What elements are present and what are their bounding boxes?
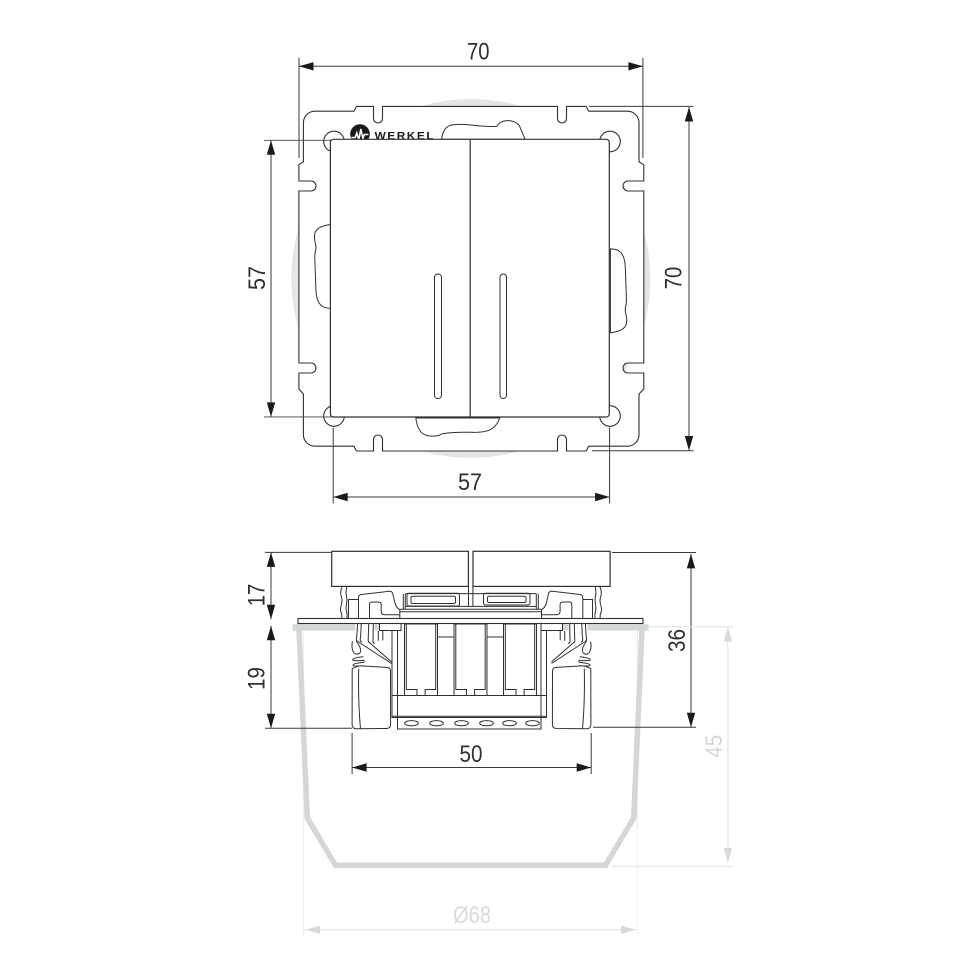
svg-text:45: 45 [701, 735, 728, 758]
svg-text:70: 70 [661, 267, 688, 290]
svg-text:50: 50 [460, 741, 483, 768]
svg-text:Ø68: Ø68 [453, 902, 491, 929]
svg-text:57: 57 [458, 469, 482, 496]
svg-text:57: 57 [244, 266, 271, 290]
svg-text:19: 19 [244, 667, 271, 690]
svg-text:17: 17 [244, 584, 271, 607]
svg-text:36: 36 [664, 629, 691, 652]
svg-text:70: 70 [467, 39, 490, 66]
